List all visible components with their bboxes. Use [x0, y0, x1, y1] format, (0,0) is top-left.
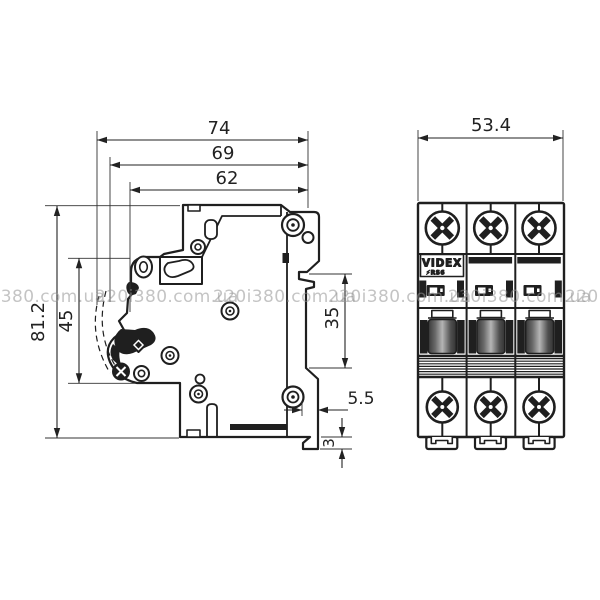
phillips-screw-icon: [474, 212, 507, 245]
toggle-handle[interactable]: [428, 320, 456, 354]
dim-height-81-2: 81.2: [28, 302, 49, 342]
model-label: ⚡RS6: [426, 270, 445, 277]
phillips-screw-icon: [523, 212, 556, 245]
side-slot: [205, 220, 217, 239]
front-din-hatch: [418, 359, 564, 375]
phillips-screw-icon: [427, 392, 458, 423]
side-flange-tab: [283, 253, 290, 263]
toggle-top-tab: [432, 311, 453, 318]
dim-width-53-4: 53.4: [471, 115, 511, 136]
phillips-screw-icon: [426, 212, 459, 245]
dim-width-69: 69: [212, 143, 235, 164]
dim-clip-5-5: 5.5: [347, 389, 374, 409]
dim-din-35: 35: [322, 307, 343, 330]
side-top-notch: [188, 205, 200, 211]
front-bottom-tabs: [426, 437, 554, 449]
front-indicator-windows: [427, 285, 542, 296]
side-bottom-tab: [187, 430, 200, 437]
toggle-top-tab: [480, 311, 501, 318]
phillips-screw-icon: [475, 392, 506, 423]
side-bottom-bar: [230, 424, 287, 430]
drawing-canvas: VIDEX ⚡RS6: [0, 0, 600, 600]
front-face-bar: [517, 257, 561, 264]
technical-drawing: VIDEX ⚡RS6: [0, 0, 600, 600]
toggle-handle[interactable]: [526, 320, 554, 354]
front-toggle-band: [420, 311, 562, 354]
side-ear-hole: [140, 262, 148, 272]
dim-width-74: 74: [208, 118, 231, 139]
front-view-drawing: VIDEX ⚡RS6: [418, 203, 564, 449]
side-dashed-arc: [95, 296, 110, 373]
brand-label: VIDEX: [422, 258, 462, 270]
dim-clip-3: 3: [320, 438, 338, 448]
side-view-drawing: [95, 205, 319, 449]
toggle-top-tab: [529, 311, 550, 318]
dim-width-62: 62: [216, 168, 239, 189]
toggle-handle[interactable]: [477, 320, 505, 354]
dim-height-45: 45: [56, 310, 77, 333]
front-face-bar: [469, 257, 512, 264]
phillips-screw-icon: [524, 392, 555, 423]
